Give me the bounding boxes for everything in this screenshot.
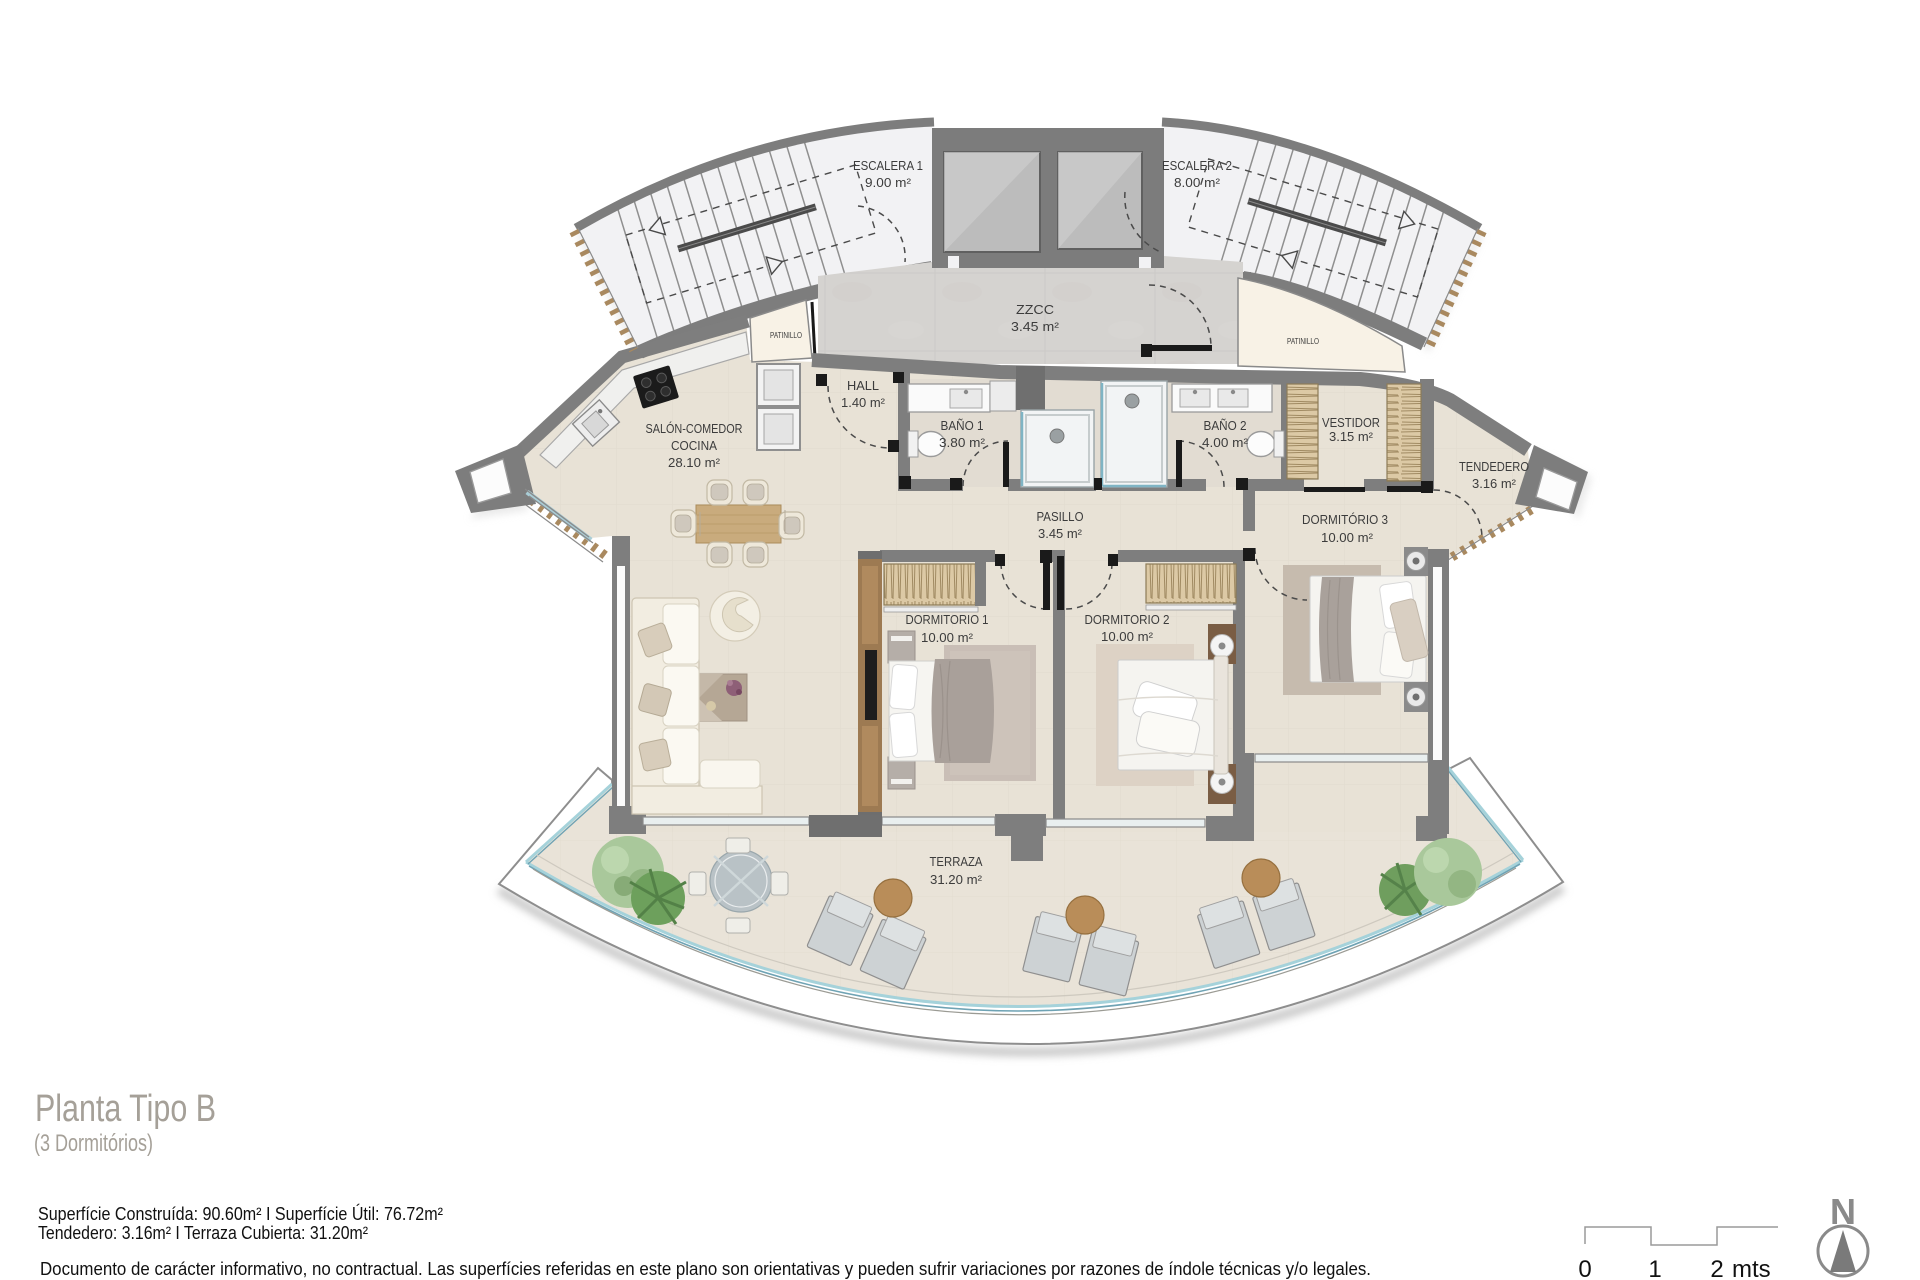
- svg-text:0: 0: [1578, 1256, 1591, 1280]
- svg-text:mts: mts: [1732, 1256, 1771, 1280]
- svg-text:10.00 m²: 10.00 m²: [921, 631, 973, 645]
- svg-text:PATINILLO: PATINILLO: [770, 330, 802, 340]
- svg-text:COCINA: COCINA: [671, 438, 717, 453]
- svg-text:DORMITORIO 1: DORMITORIO 1: [906, 612, 989, 627]
- svg-text:Documento de carácter informat: Documento de carácter informativo, no co…: [40, 1259, 1371, 1279]
- svg-text:4.00 m²: 4.00 m²: [1202, 436, 1248, 450]
- svg-text:1.40 m²: 1.40 m²: [841, 396, 885, 410]
- svg-text:VESTIDOR: VESTIDOR: [1322, 415, 1380, 430]
- svg-text:28.10 m²: 28.10 m²: [668, 456, 720, 470]
- svg-text:BAÑO 2: BAÑO 2: [1204, 418, 1247, 433]
- svg-text:TENDEDERO: TENDEDERO: [1459, 459, 1529, 474]
- svg-text:Superfície Construída: 90.60m²: Superfície Construída: 90.60m² I Superfí…: [38, 1203, 443, 1224]
- svg-text:TERRAZA: TERRAZA: [930, 854, 983, 869]
- svg-text:1: 1: [1648, 1256, 1661, 1280]
- svg-text:SALÓN-COMEDOR: SALÓN-COMEDOR: [646, 421, 743, 436]
- svg-text:BAÑO 1: BAÑO 1: [941, 418, 984, 433]
- svg-text:9.00 m²: 9.00 m²: [865, 176, 911, 190]
- svg-text:PATINILLO: PATINILLO: [1287, 336, 1319, 346]
- svg-text:31.20 m²: 31.20 m²: [930, 873, 982, 887]
- svg-text:3.16 m²: 3.16 m²: [1472, 477, 1516, 491]
- svg-text:Tendedero: 3.16m² I Terraza Cu: Tendedero: 3.16m² I Terraza Cubierta: 31…: [38, 1223, 368, 1243]
- svg-text:HALL: HALL: [847, 378, 879, 393]
- svg-text:PASILLO: PASILLO: [1037, 509, 1084, 524]
- svg-text:ESCALERA 2: ESCALERA 2: [1162, 158, 1232, 173]
- svg-text:ESCALERA 1: ESCALERA 1: [853, 158, 923, 173]
- svg-text:3.15 m²: 3.15 m²: [1329, 430, 1373, 444]
- svg-text:10.00 m²: 10.00 m²: [1101, 630, 1153, 644]
- svg-text:3.45 m²: 3.45 m²: [1011, 320, 1059, 334]
- svg-text:3.45 m²: 3.45 m²: [1038, 527, 1082, 541]
- svg-text:2: 2: [1710, 1256, 1723, 1280]
- svg-text:8.00 m²: 8.00 m²: [1174, 176, 1220, 190]
- svg-text:3.80 m²: 3.80 m²: [939, 436, 985, 450]
- svg-text:(3 Dormitórios): (3 Dormitórios): [34, 1130, 153, 1157]
- svg-text:DORMITORIO 2: DORMITORIO 2: [1085, 612, 1170, 627]
- svg-text:10.00 m²: 10.00 m²: [1321, 531, 1373, 545]
- svg-text:Planta Tipo B: Planta Tipo B: [35, 1088, 216, 1130]
- svg-text:DORMITÓRIO 3: DORMITÓRIO 3: [1302, 512, 1388, 527]
- svg-text:ZZCC: ZZCC: [1016, 302, 1054, 317]
